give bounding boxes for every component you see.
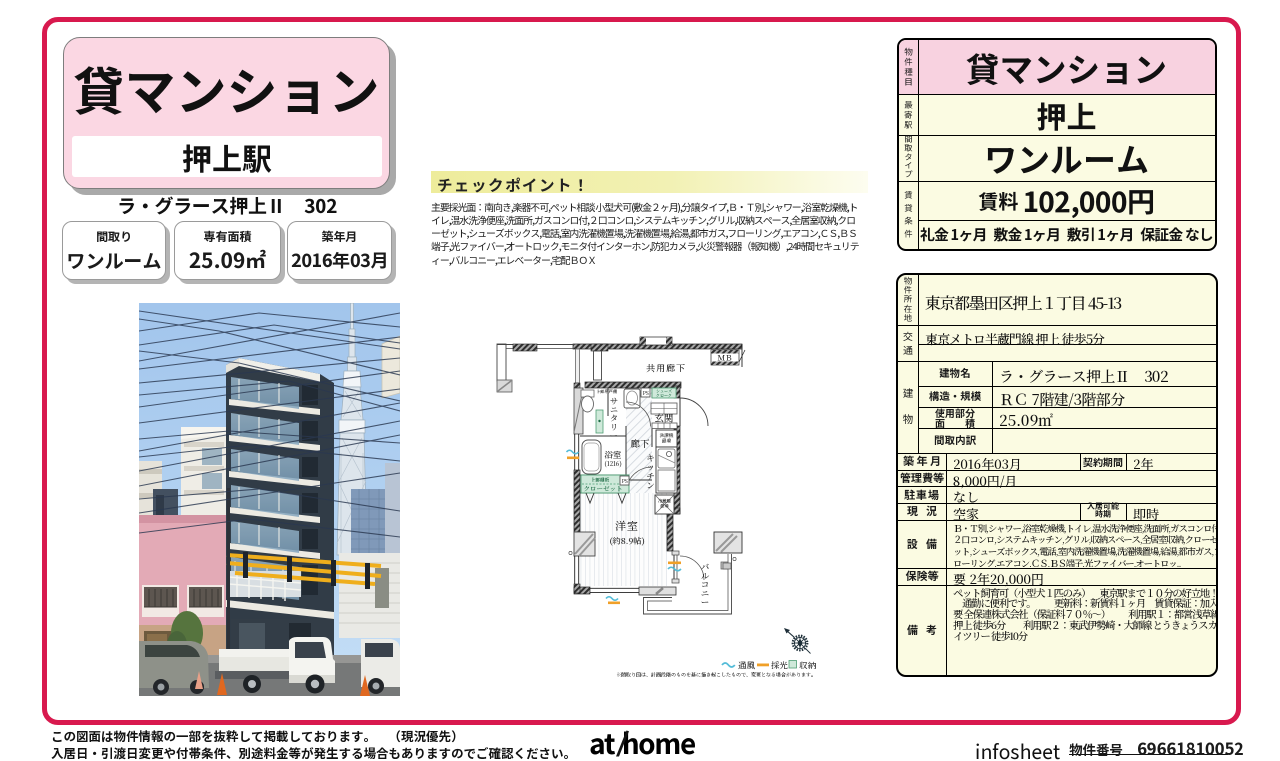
svg-text:PS: PS	[621, 478, 627, 485]
svg-text:上部棚板: 上部棚板	[591, 477, 610, 484]
svg-text:home: home	[622, 729, 696, 759]
svg-text:クローク: クローク	[656, 393, 672, 399]
svg-text:採光: 採光	[771, 660, 789, 672]
svg-text:上部吊戸棚: 上部吊戸棚	[596, 388, 618, 395]
svg-text:ＭＢ: ＭＢ	[718, 353, 733, 364]
svg-text:洋室: 洋室	[615, 518, 639, 534]
svg-text:(約8.9帖): (約8.9帖)	[609, 535, 645, 547]
svg-text:※間取り図は、計画段階のものを基に描き起こしたもので、変更と: ※間取り図は、計画段階のものを基に描き起こしたもので、変更となる場合があります。	[616, 672, 816, 679]
svg-text:(1216): (1216)	[605, 459, 622, 468]
svg-text:置場: 置場	[661, 439, 672, 445]
svg-text:廊下: 廊下	[630, 436, 650, 450]
svg-text:ー: ー	[610, 430, 618, 441]
svg-text:収納: 収納	[799, 660, 817, 672]
svg-text:共用廊下: 共用廊下	[646, 362, 686, 375]
svg-text:ー: ー	[701, 596, 710, 608]
svg-text:PS: PS	[642, 390, 648, 397]
svg-text:クローゼット: クローゼット	[584, 484, 623, 493]
svg-text:at: at	[589, 729, 616, 759]
svg-text:玄関: 玄関	[654, 411, 674, 425]
svg-text:ン: ン	[646, 480, 655, 492]
svg-text:通風: 通風	[738, 660, 756, 672]
svg-text:置場: 置場	[659, 504, 669, 510]
